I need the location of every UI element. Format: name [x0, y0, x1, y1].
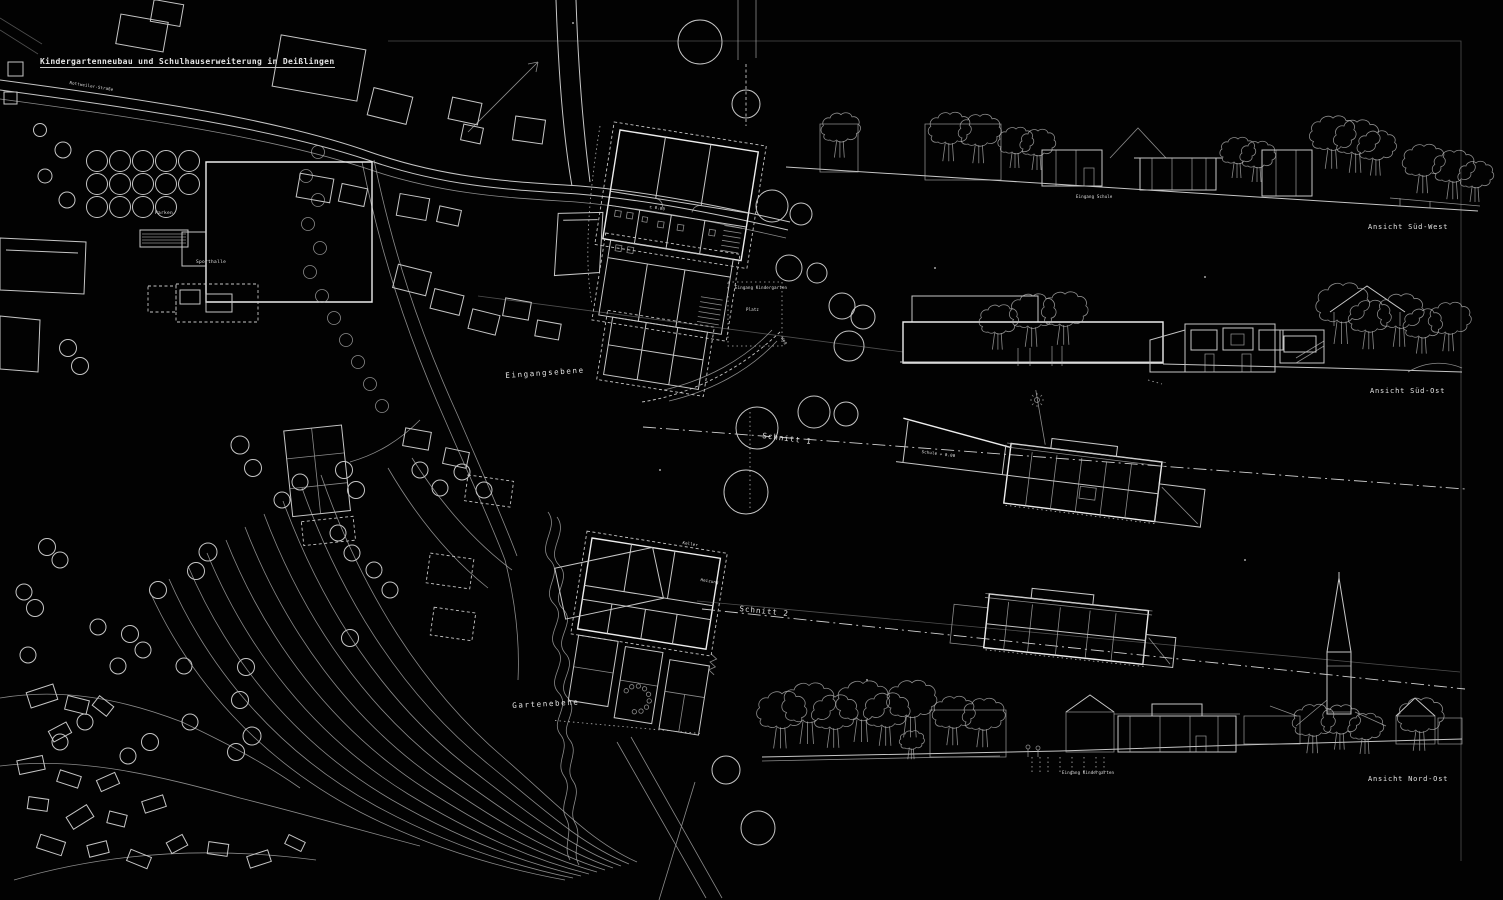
parking-label: Parken: [155, 211, 173, 216]
blueprint-canvas: [0, 0, 1503, 900]
square-label: Platz: [746, 307, 759, 312]
elevation-no-label: Ansicht Nord-Ost: [1368, 775, 1448, 783]
school-entrance-label: Eingang Schule: [1076, 194, 1113, 199]
figure-icons: [1026, 745, 1040, 757]
kindergarten-entrance-plan-label: Eingang Kindergarten: [735, 285, 787, 290]
floor-plan-lower: [531, 527, 733, 744]
kindergarten-entrance-elev-label: Eingang Kindergarten: [1062, 770, 1114, 775]
dust-dots: [572, 22, 1246, 681]
section-schnitt-2: [950, 580, 1180, 669]
elevation-nord-ost: [757, 572, 1462, 775]
sports-hall: [140, 162, 372, 322]
tree-row: [300, 146, 389, 413]
elevation-so-label: Ansicht Süd-Ost: [1370, 387, 1445, 395]
architectural-sheet: Kindergartenneubau und Schulhauserweiter…: [0, 0, 1503, 900]
floor-plan-upper: [533, 116, 766, 400]
contour-lines: [150, 458, 637, 880]
sheet-title: Kindergartenneubau und Schulhauserweiter…: [40, 57, 335, 68]
site-plan: [0, 0, 790, 900]
elevation-sued-west: [786, 112, 1494, 211]
parking-trees: [34, 124, 200, 218]
elevation-sw-label: Ansicht Süd-West: [1368, 223, 1448, 231]
sports-hall-label: Sporthalle: [196, 260, 226, 265]
sheet-frame: [0, 18, 1461, 861]
village: [0, 684, 420, 880]
church: [1244, 572, 1386, 744]
